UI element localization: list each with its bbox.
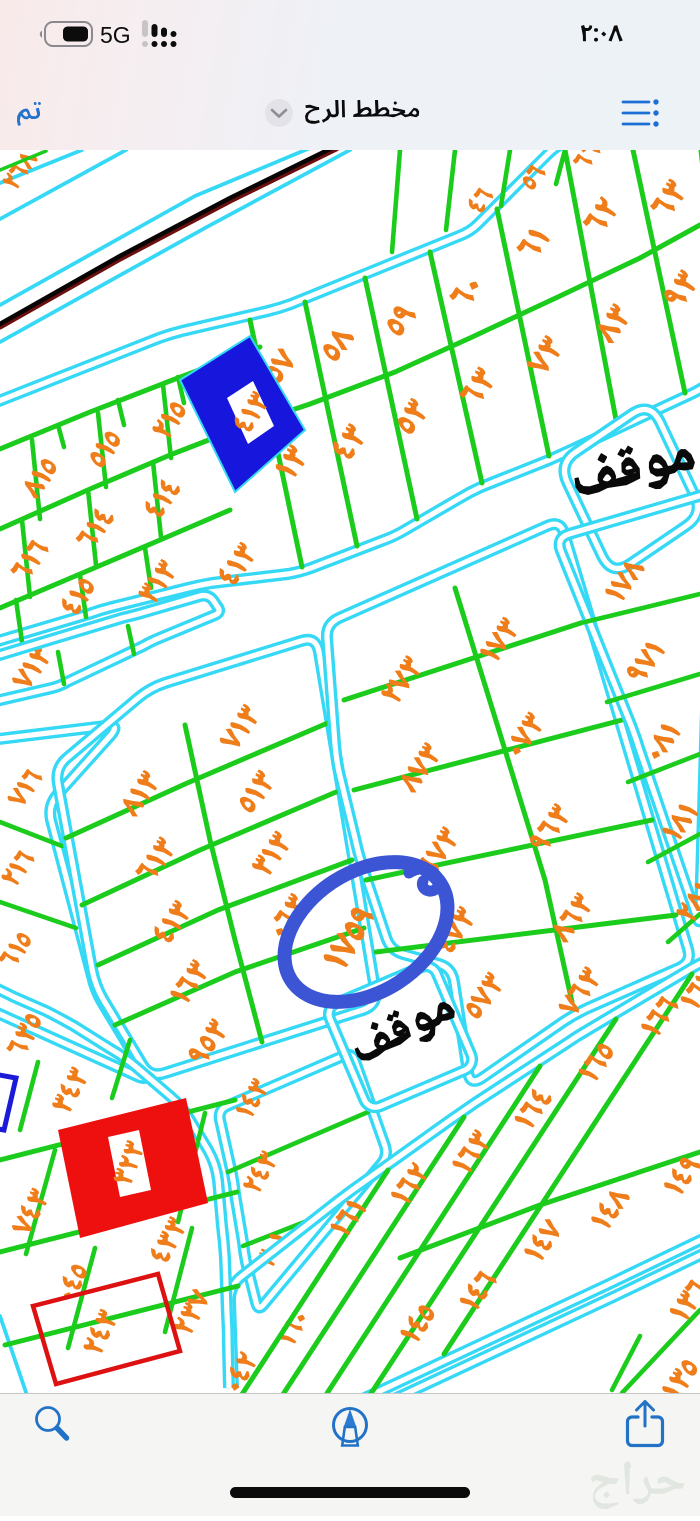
svg-text:5G: 5G <box>100 22 131 48</box>
